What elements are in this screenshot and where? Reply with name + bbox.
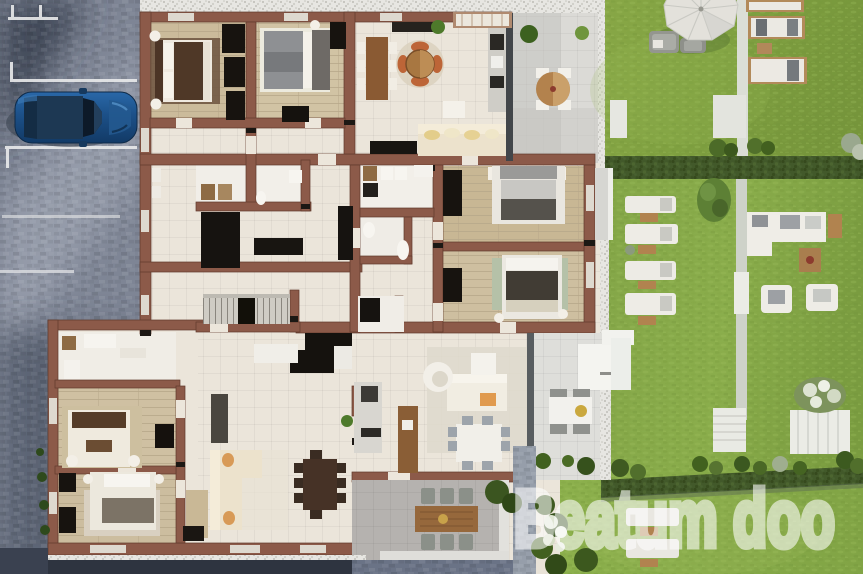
svg-text:Beatum doo: Beatum doo bbox=[514, 475, 835, 564]
